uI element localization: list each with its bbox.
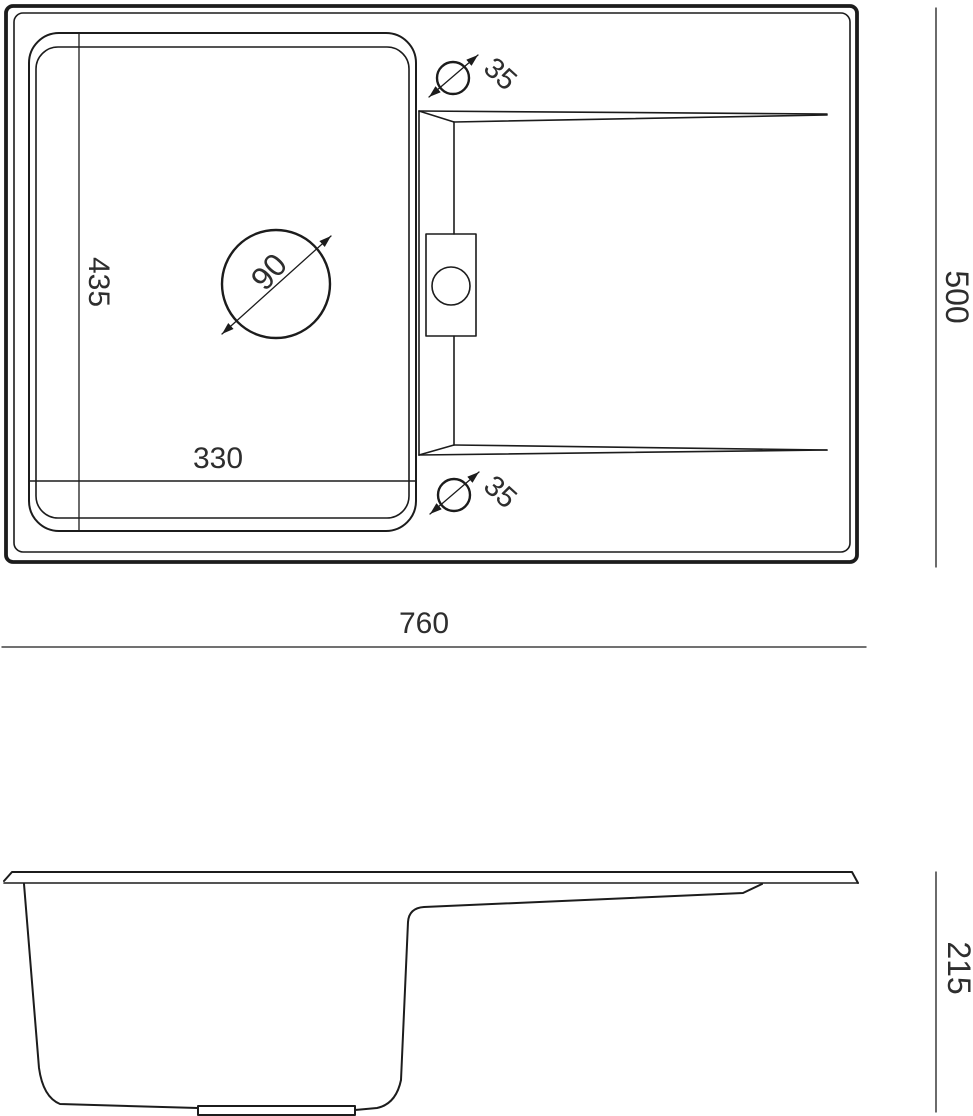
drainboard-bottom-outer-edge [419, 450, 827, 455]
tap-hole-bottom-label: 35 [477, 470, 522, 515]
faucet-mount [426, 234, 476, 336]
drain-hole: 90 [222, 230, 331, 338]
tap-hole-bottom: 35 [430, 470, 523, 515]
side-rim-top-edge [4, 872, 858, 883]
overall-width-label: 760 [399, 607, 449, 640]
bowl-width-label: 330 [193, 442, 243, 475]
drawing-page: 435 330 90 [0, 0, 973, 1116]
side-drain-fitting [198, 1106, 355, 1115]
bowl-depth-label: 435 [82, 257, 115, 307]
side-bowl-right-wall-and-drainboard-underside [355, 884, 762, 1110]
overall-depth-label: 500 [939, 270, 973, 323]
faucet-mount-hole [432, 267, 470, 305]
faucet-mount-plate [426, 234, 476, 336]
drainboard-bottom-corner [419, 445, 454, 455]
sink-technical-drawing: 435 330 90 [0, 0, 973, 1116]
tap-hole-top: 35 [429, 52, 523, 97]
tap-hole-top-label: 35 [477, 52, 522, 97]
drainboard [419, 111, 827, 455]
side-rim [4, 872, 858, 883]
overall-depth-dimension: 500 [936, 8, 973, 567]
bowl-depth-dimension: 435 [79, 33, 115, 531]
drainboard-top-corner [419, 111, 454, 122]
overall-width-dimension: 760 [2, 607, 866, 647]
drainboard-top-outer-edge [419, 111, 827, 114]
side-bowl-left-wall [24, 884, 198, 1108]
height-dimension: 215 [936, 872, 973, 1112]
drainboard-top-inner-edge [454, 115, 827, 122]
side-view: 215 [4, 872, 973, 1115]
drain-diameter-label: 90 [244, 246, 295, 297]
height-label: 215 [941, 941, 973, 994]
drainboard-bottom-inner-edge [454, 445, 827, 450]
top-view: 435 330 90 [2, 6, 973, 647]
